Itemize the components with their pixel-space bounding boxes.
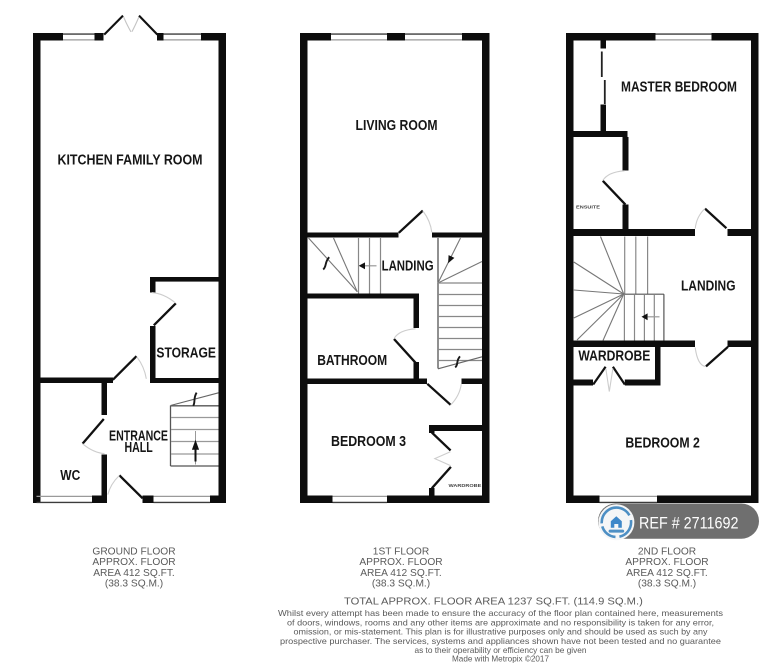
svg-text:AREA 412 SQ.FT.: AREA 412 SQ.FT. — [626, 568, 708, 579]
svg-text:1ST FLOOR: 1ST FLOOR — [373, 547, 429, 558]
svg-text:AREA 412 SQ.FT.: AREA 412 SQ.FT. — [360, 568, 442, 579]
svg-text:APPROX. FLOOR: APPROX. FLOOR — [359, 557, 442, 568]
svg-text:REF # 2711692: REF # 2711692 — [639, 515, 739, 533]
svg-text:APPROX. FLOOR: APPROX. FLOOR — [92, 557, 175, 568]
svg-text:(38.3 SQ.M.): (38.3 SQ.M.) — [372, 579, 430, 590]
svg-text:MASTER BEDROOM: MASTER BEDROOM — [621, 80, 737, 96]
svg-text:HALL: HALL — [125, 440, 153, 456]
svg-text:KITCHEN FAMILY ROOM: KITCHEN FAMILY ROOM — [58, 153, 203, 169]
svg-text:LANDING: LANDING — [681, 278, 736, 294]
svg-text:Made with Metropix ©2017: Made with Metropix ©2017 — [452, 654, 549, 664]
svg-text:2ND FLOOR: 2ND FLOOR — [638, 547, 696, 558]
svg-text:(38.3 SQ.M.): (38.3 SQ.M.) — [638, 579, 696, 590]
svg-text:WC: WC — [60, 468, 80, 484]
svg-text:BEDROOM 2: BEDROOM 2 — [625, 435, 700, 451]
svg-text:APPROX. FLOOR: APPROX. FLOOR — [625, 557, 708, 568]
svg-text:WARDROBE: WARDROBE — [449, 483, 482, 488]
svg-text:(38.3 SQ.M.): (38.3 SQ.M.) — [105, 579, 163, 590]
svg-text:WARDROBE: WARDROBE — [578, 349, 650, 365]
svg-text:GROUND FLOOR: GROUND FLOOR — [92, 547, 175, 558]
svg-text:LANDING: LANDING — [382, 258, 434, 274]
svg-text:ENSUITE: ENSUITE — [576, 204, 600, 209]
svg-text:LIVING ROOM: LIVING ROOM — [356, 118, 438, 134]
svg-text:BEDROOM 3: BEDROOM 3 — [331, 434, 406, 450]
svg-text:STORAGE: STORAGE — [156, 346, 216, 362]
svg-text:AREA 412 SQ.FT.: AREA 412 SQ.FT. — [93, 568, 175, 579]
svg-text:BATHROOM: BATHROOM — [317, 353, 387, 369]
svg-text:TOTAL APPROX. FLOOR AREA 1237: TOTAL APPROX. FLOOR AREA 1237 SQ.FT. (11… — [344, 596, 643, 607]
